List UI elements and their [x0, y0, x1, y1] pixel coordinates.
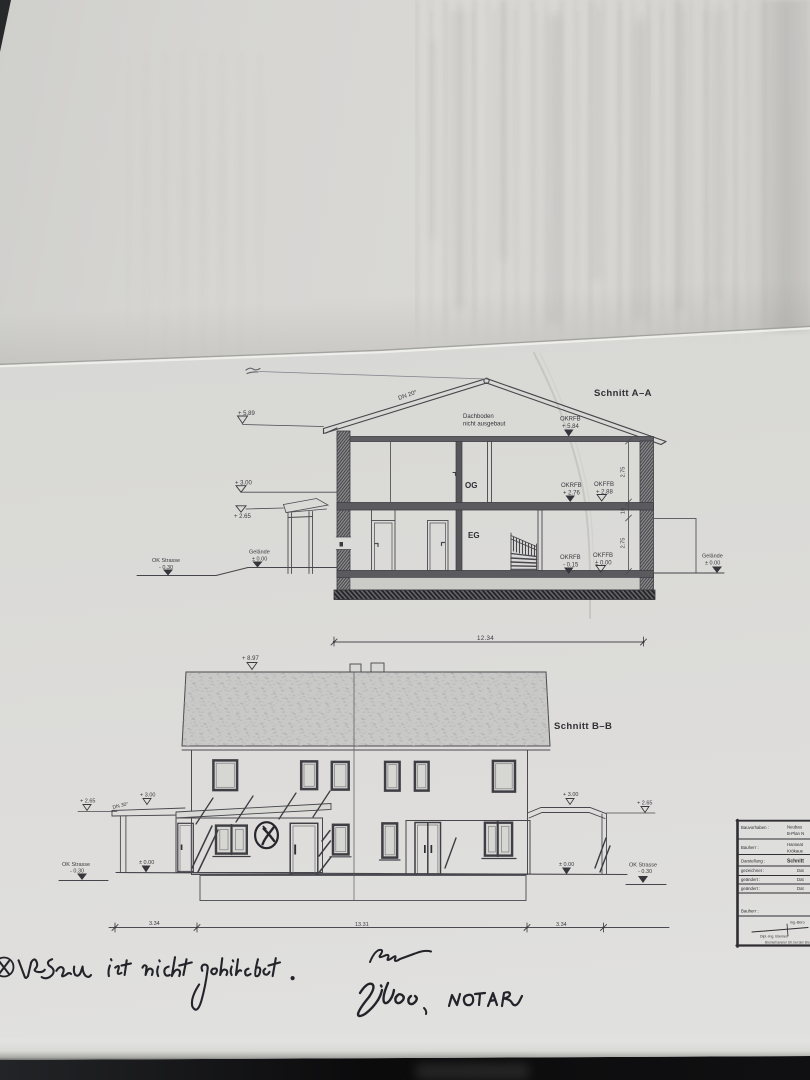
svg-text:Dipl.-Ing. Bremen: Dipl.-Ing. Bremen	[760, 935, 788, 939]
svg-text:+ 5.84: + 5.84	[562, 424, 580, 430]
svg-text:Darstellung :: Darstellung :	[741, 859, 765, 864]
svg-text:Dat: Dat	[797, 868, 804, 873]
svg-text:OG: OG	[465, 481, 477, 490]
svg-text:OKRFB: OKRFB	[561, 483, 582, 489]
svg-text:13.31: 13.31	[355, 922, 369, 928]
svg-text:OKFFB: OKFFB	[593, 553, 613, 559]
svg-text:3.34: 3.34	[149, 921, 160, 927]
svg-text:Bremerhavener Str. bei den Bre: Bremerhavener Str. bei den Bre	[765, 941, 810, 945]
svg-text:± 0.00: ± 0.00	[139, 860, 154, 866]
svg-text:2.75: 2.75	[621, 467, 627, 478]
svg-text:+ 3.00: + 3.00	[563, 792, 578, 798]
svg-text:± 0.00: ± 0.00	[705, 561, 720, 567]
svg-text:geändert :: geändert :	[741, 886, 760, 891]
svg-text:Hanseat: Hanseat	[787, 842, 804, 847]
svg-text:Bauvorhaben :: Bauvorhaben :	[741, 825, 769, 830]
svg-text:OKRFB: OKRFB	[560, 555, 581, 561]
svg-text:16: 16	[621, 508, 627, 514]
svg-text:Gelände: Gelände	[249, 550, 270, 556]
svg-text:+ 3.00: + 3.00	[140, 793, 155, 799]
svg-text:Dat: Dat	[797, 886, 804, 891]
svg-text:Gelände: Gelände	[702, 554, 723, 560]
svg-text:OKFFB: OKFFB	[594, 482, 614, 488]
svg-text:+ 2.65: + 2.65	[637, 801, 652, 807]
svg-text:+ 2.65: + 2.65	[80, 799, 95, 805]
svg-text:OKRFB: OKRFB	[560, 417, 581, 423]
svg-text:± 0.00: ± 0.00	[559, 862, 574, 868]
svg-text:Dachboden: Dachboden	[463, 414, 494, 420]
svg-text:geändert :: geändert :	[741, 877, 760, 882]
svg-text:- 0.30: - 0.30	[638, 869, 652, 875]
svg-text:DN 30°: DN 30°	[112, 801, 129, 811]
svg-text:Schnitt A–A: Schnitt A–A	[594, 388, 652, 399]
svg-text:Bauherr :: Bauherr :	[741, 909, 759, 914]
svg-text:2.75: 2.75	[621, 538, 627, 549]
svg-text:12.34: 12.34	[477, 635, 494, 642]
svg-text:ing.-Büro: ing.-Büro	[790, 921, 805, 925]
svg-text:+ 8.97: + 8.97	[242, 656, 260, 662]
svg-text:Neubau: Neubau	[787, 825, 803, 830]
svg-text:OK Strasse: OK Strasse	[629, 863, 657, 869]
svg-text:gezeichnet :: gezeichnet :	[741, 868, 764, 873]
svg-text:Schnitt B–B: Schnitt B–B	[554, 721, 612, 732]
svg-text:Dat: Dat	[797, 877, 804, 882]
svg-text:OK Strasse: OK Strasse	[62, 862, 90, 868]
svg-text:B-Plan N: B-Plan N	[787, 831, 804, 836]
svg-text:EG: EG	[468, 531, 480, 540]
svg-text:+ 2.65: + 2.65	[234, 514, 252, 520]
svg-text:3.34: 3.34	[556, 922, 567, 928]
svg-text:OK Strasse: OK Strasse	[152, 558, 180, 564]
svg-text:Bauherr :: Bauherr :	[741, 845, 759, 850]
svg-text:nicht ausgebaut: nicht ausgebaut	[463, 422, 506, 428]
svg-text:Schnitt: Schnitt	[787, 859, 804, 865]
svg-text:Krökaue: Krökaue	[787, 849, 804, 854]
